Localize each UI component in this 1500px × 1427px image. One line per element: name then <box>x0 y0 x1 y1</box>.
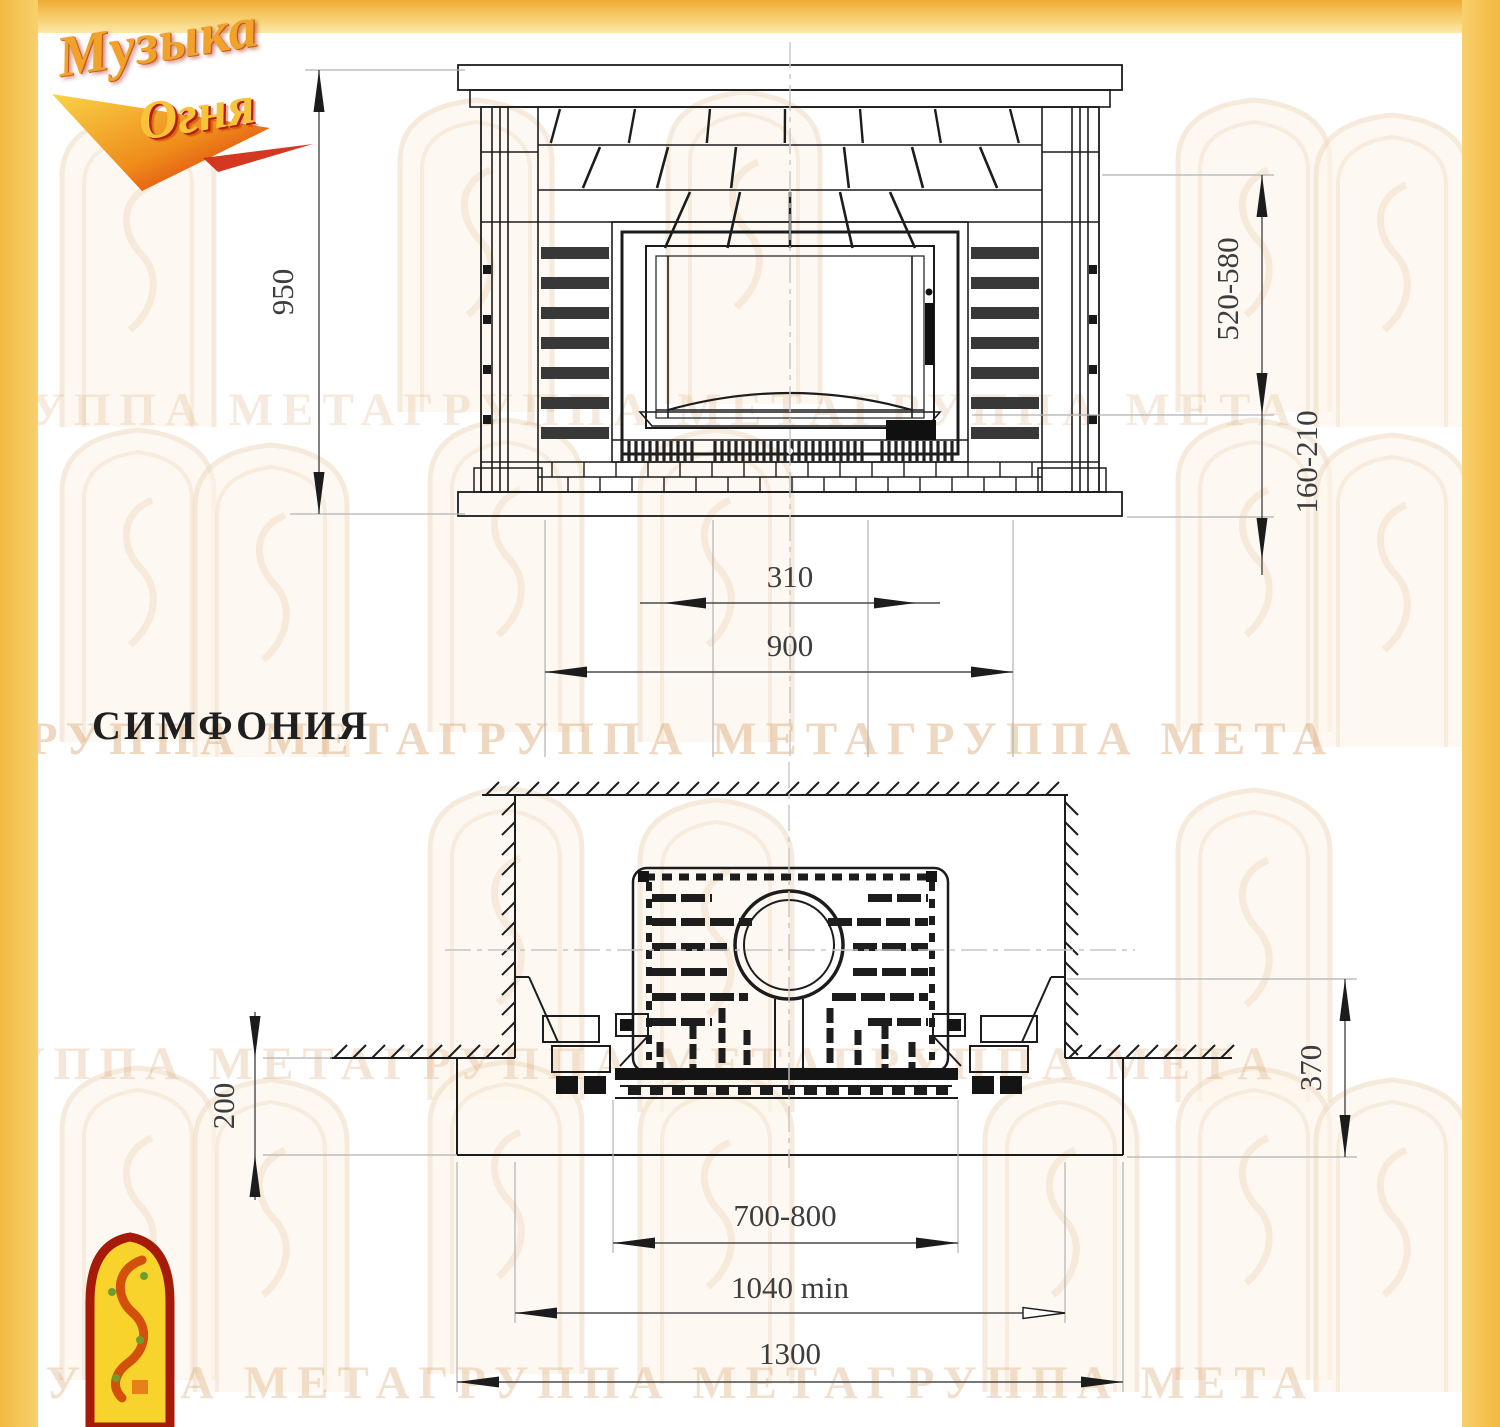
dim-portal-width-label: 900 <box>767 628 814 664</box>
model-title: СИМФОНИЯ <box>92 702 370 749</box>
dim-niche-width-label: 1040 min <box>731 1270 849 1306</box>
page: ГРУППА МЕТАГРУППА МЕТАГРУППА МЕТА ГРУППА… <box>0 0 1500 1427</box>
arch-emblem <box>80 1230 180 1427</box>
dim-grate-width-label: 310 <box>767 559 814 595</box>
dim-opening-height-label: 520-580 <box>1210 237 1246 340</box>
dim-hearth-height-label: 160-210 <box>1289 410 1325 513</box>
dim-overall-height-label: 950 <box>265 269 301 316</box>
plan-section-view <box>330 782 1234 1155</box>
brand-logo: Музыка Огня <box>38 8 330 200</box>
dim-hearth-projection-label: 200 <box>206 1083 242 1130</box>
dim-opening-width-label: 700-800 <box>733 1198 836 1234</box>
page-border-left <box>0 0 38 1427</box>
dim-base-width-label: 1300 <box>759 1336 821 1372</box>
dimension-annotations <box>250 42 1358 1392</box>
dim-front-depth-label: 370 <box>1293 1045 1329 1092</box>
page-border-right <box>1462 0 1500 1427</box>
arch-flame-icon <box>80 1230 180 1427</box>
